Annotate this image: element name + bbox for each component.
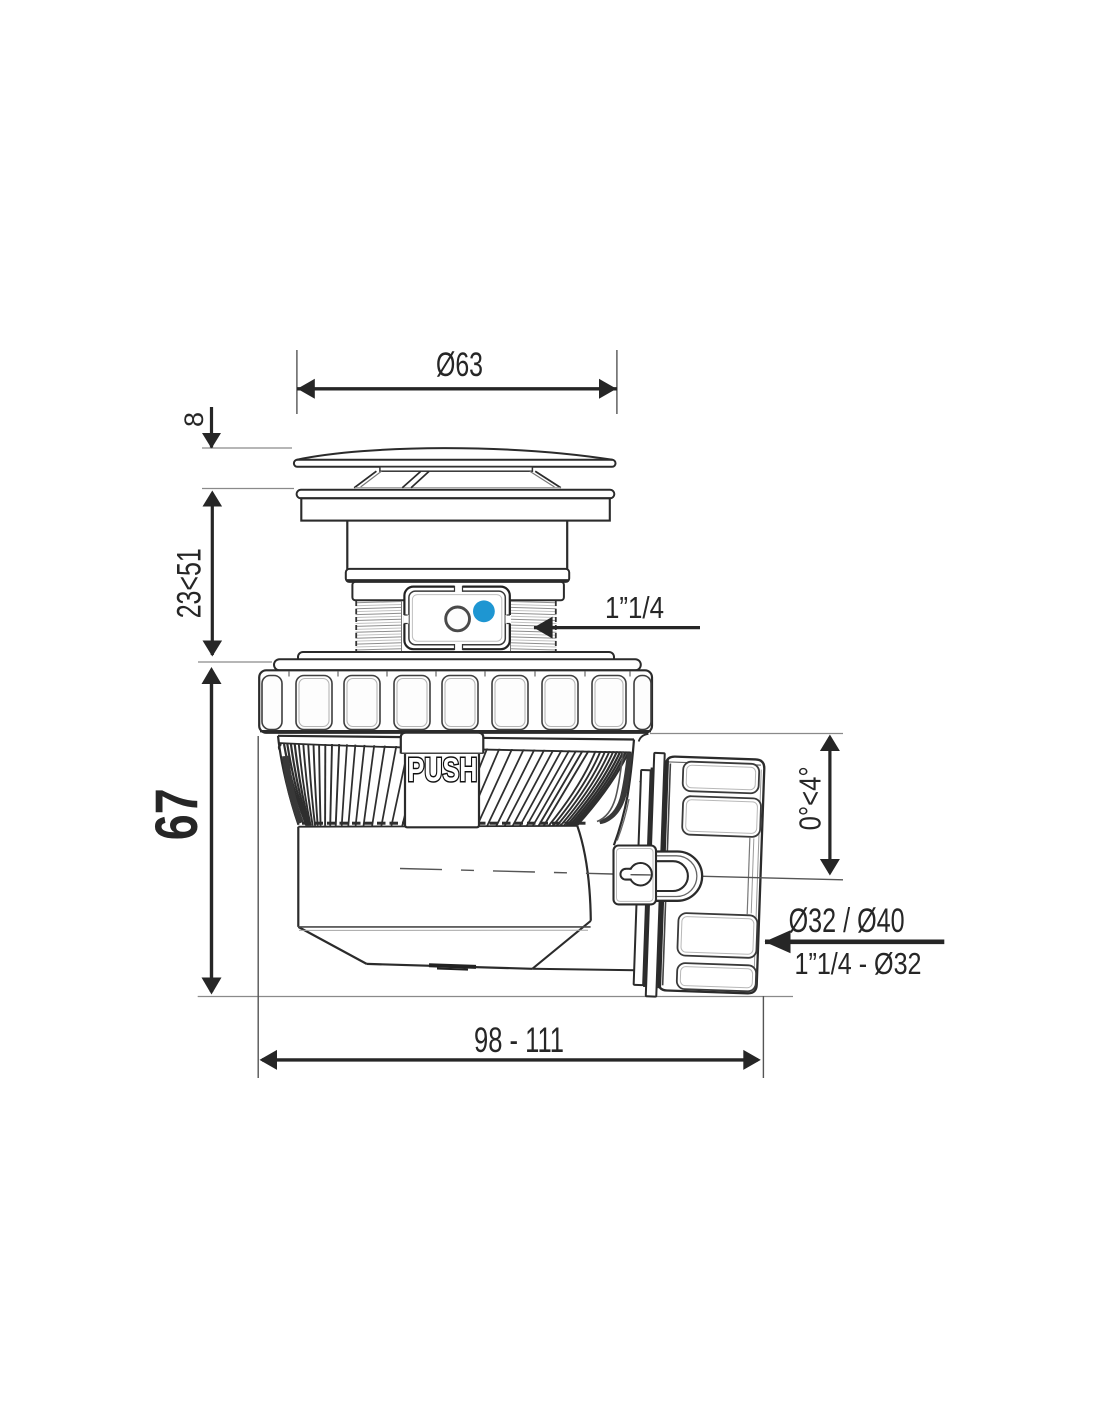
svg-text:67: 67 [143,788,210,840]
svg-text:0°<4°: 0°<4° [793,766,828,830]
svg-text:8: 8 [179,412,209,427]
svg-text:Ø63: Ø63 [436,346,483,384]
svg-text:Ø32 / Ø40: Ø32 / Ø40 [789,902,905,940]
svg-text:PUSH: PUSH [408,751,478,788]
svg-text:98 - 111: 98 - 111 [474,1021,564,1060]
svg-text:1”1/4 - Ø32: 1”1/4 - Ø32 [795,946,922,981]
svg-text:23<51: 23<51 [171,548,209,618]
svg-text:1”1/4: 1”1/4 [605,590,664,625]
